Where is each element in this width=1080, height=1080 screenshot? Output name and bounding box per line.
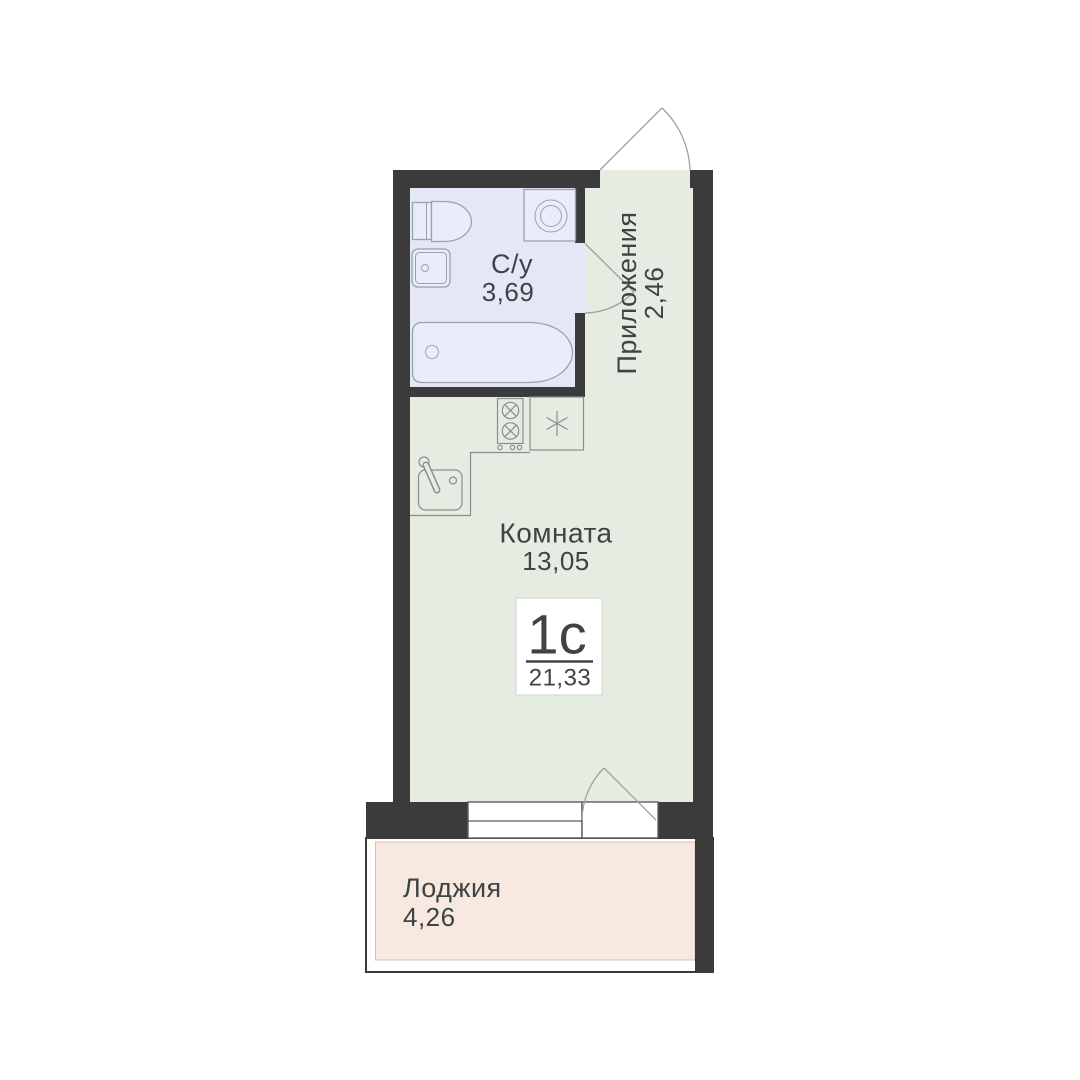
wall-top-left [393, 170, 600, 188]
hallway-area: 2,46 [639, 267, 669, 320]
wall-bathroom-right-upper [575, 188, 585, 243]
bathroom-door-opening-floor [575, 243, 585, 313]
floorplan-drawing: С/у 3,69 Приложения 2,46 Комната 13,05 1… [0, 0, 1080, 1080]
wall-left [393, 170, 410, 802]
toilet-icon [413, 202, 472, 242]
balcony-door-frame [582, 802, 658, 838]
floorplan-canvas: С/у 3,69 Приложения 2,46 Комната 13,05 1… [0, 0, 1080, 1080]
entrance-door-swing-icon [600, 108, 690, 170]
hallway-label: Приложения [612, 212, 642, 375]
wall-loggia-right [695, 838, 713, 972]
loggia-label: Лоджия [403, 873, 502, 903]
wall-bathroom-bottom [410, 387, 585, 397]
wall-right [693, 188, 713, 838]
wall-bottom-right [658, 802, 713, 838]
unit-type: 1с [527, 603, 586, 666]
loggia-area: 4,26 [403, 902, 456, 932]
wall-bathroom-right-lower [575, 313, 585, 387]
unit-total-area: 21,33 [529, 665, 592, 692]
bathroom-label: С/у [491, 249, 533, 279]
wall-top-right-jamb [690, 170, 713, 188]
bathroom-area: 3,69 [482, 277, 535, 307]
room-area: 13,05 [522, 546, 590, 576]
bathroom-sink-icon [412, 249, 450, 287]
bathtub-icon [413, 323, 573, 383]
room-label: Комната [499, 518, 612, 549]
wall-bottom-left [366, 802, 468, 838]
window-icon [468, 802, 582, 838]
entrance-opening-floor [600, 170, 690, 188]
washing-machine-icon [524, 190, 576, 242]
